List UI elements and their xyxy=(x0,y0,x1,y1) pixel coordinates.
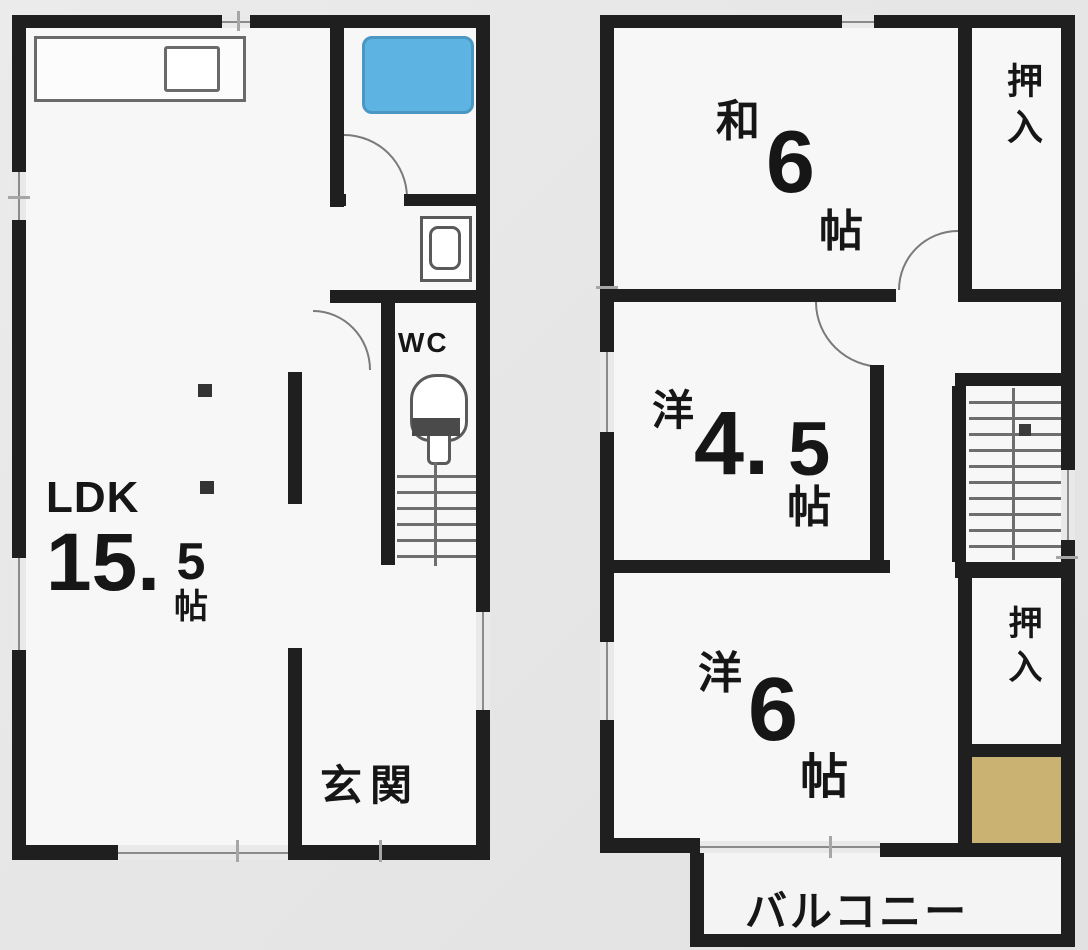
balcony-label: バルコニー xyxy=(745,878,969,939)
wall-stairs-bottom xyxy=(955,562,1075,578)
youshitsu6-size: 6 xyxy=(748,670,798,802)
wall-youshitsu6-top xyxy=(600,560,890,573)
ldk-size-sub-col: 5 帖 xyxy=(174,536,208,624)
toilet-base xyxy=(427,436,451,465)
youshitsu6-label: 洋 6 帖 xyxy=(698,646,848,802)
washitsu-unit: 帖 xyxy=(819,210,863,254)
ldk-size-row: 15. 5 帖 xyxy=(46,524,208,624)
pillar xyxy=(198,384,212,397)
ldk-label-name-row: LDK xyxy=(46,476,208,520)
washitsu-prefix: 和 xyxy=(716,100,760,254)
storage-tan-area xyxy=(972,757,1061,843)
balcony-slider-window xyxy=(700,841,880,853)
youshitsu45-prefix: 洋 xyxy=(652,390,694,530)
kitchen-sink xyxy=(164,46,220,92)
oshiire-top-text: 押入 xyxy=(1002,62,1043,154)
wall-ldk-hall-lower xyxy=(288,648,302,845)
wall-stairs-top xyxy=(955,373,1075,386)
staircase-2f-post xyxy=(1019,424,1031,436)
genkan-label: 玄関 xyxy=(320,752,420,813)
tick-mark xyxy=(379,840,382,862)
wall-oshiire-bottom-divider xyxy=(958,573,972,845)
wall-outer-left-f1 xyxy=(12,15,26,860)
wall-balcony-right xyxy=(1061,853,1075,947)
wc-label: WC xyxy=(398,327,449,359)
youshitsu45-sub-col: 5 帖 xyxy=(787,414,831,530)
window-marker xyxy=(118,845,288,860)
ldk-name: LDK xyxy=(46,473,139,522)
washbasin-bowl xyxy=(429,226,461,270)
youshitsu6-prefix: 洋 xyxy=(698,652,742,802)
window-marker xyxy=(222,15,250,28)
wall-outer-top-f2 xyxy=(600,15,1075,28)
window-marker xyxy=(842,15,874,28)
oshiire-bottom-label: 押入 xyxy=(998,605,1047,755)
wall-washroom-bottom xyxy=(330,290,490,303)
window-marker xyxy=(600,642,614,720)
ldk-label: LDK 15. 5 帖 xyxy=(46,476,208,624)
ldk-size-main: 15. xyxy=(46,524,160,602)
toilet-tank xyxy=(412,418,460,436)
window-marker xyxy=(476,612,490,710)
ldk-size-sub: 5 xyxy=(177,536,206,588)
tick-mark xyxy=(829,836,832,858)
balcony-label-text: バルコニー xyxy=(745,888,969,935)
wall-outer-right-f1 xyxy=(476,15,490,860)
wall-washitsu-bottom-left xyxy=(600,289,896,302)
wall-outer-bottom-left-f2 xyxy=(600,838,700,853)
tick-mark xyxy=(1056,556,1078,559)
washitsu-size: 6 xyxy=(766,122,815,254)
window-marker xyxy=(12,558,26,650)
toilet xyxy=(406,374,468,470)
wall-outer-right-f2 xyxy=(1061,15,1075,860)
wall-oshiire-top-divider xyxy=(958,15,972,292)
ldk-size-unit: 帖 xyxy=(174,590,208,624)
youshitsu45-size-sub: 5 xyxy=(788,414,830,486)
wall-outer-top-f1 xyxy=(12,15,490,28)
genkan-label-text: 玄関 xyxy=(320,762,420,809)
floorplan-canvas: WC 玄関 LDK 15. 5 帖 xyxy=(0,0,1088,950)
staircase-1f-divider xyxy=(434,462,437,566)
wall-outer-bottom-right-f2 xyxy=(880,843,1075,857)
wall-bath-bottom-stub xyxy=(330,194,346,206)
wall-wc-left xyxy=(381,300,395,565)
wc-label-text: WC xyxy=(398,327,449,358)
tick-mark xyxy=(596,286,618,289)
youshitsu6-unit: 帖 xyxy=(800,754,848,802)
bathtub xyxy=(362,36,474,114)
oshiire-bottom-text: 押入 xyxy=(1003,605,1041,693)
wall-outer-left-f2 xyxy=(600,15,614,853)
tick-mark xyxy=(237,11,240,31)
youshitsu45-unit: 帖 xyxy=(787,486,831,530)
tick-mark xyxy=(236,840,239,862)
wall-bath-left xyxy=(330,15,344,207)
youshitsu45-size-main: 4. xyxy=(694,404,769,530)
wall-washitsu-bottom-right xyxy=(958,289,1075,302)
window-marker xyxy=(600,352,614,432)
staircase-2f-divider xyxy=(1012,388,1015,560)
washitsu-label: 和 6 帖 xyxy=(716,94,863,254)
wall-ldk-hall-upper xyxy=(288,372,302,504)
tick-mark xyxy=(8,196,30,199)
wall-balcony-left xyxy=(690,853,704,947)
youshitsu45-label: 洋 4. 5 帖 xyxy=(652,382,831,530)
wall-youshitsu45-right xyxy=(870,365,884,570)
window-marker xyxy=(1061,470,1075,540)
staircase-2f xyxy=(969,388,1061,560)
wall-stairs-left xyxy=(952,386,966,562)
oshiire-top-label: 押入 xyxy=(996,62,1048,262)
